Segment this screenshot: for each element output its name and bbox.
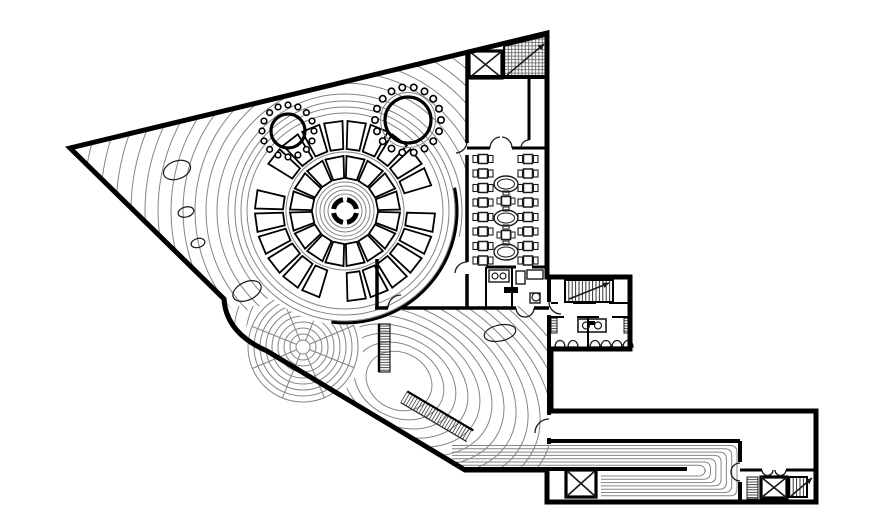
chair-dot <box>374 128 380 134</box>
chair-dot <box>304 110 310 116</box>
square-table <box>502 197 511 206</box>
chair-dot <box>430 96 436 102</box>
table <box>479 242 488 251</box>
chair-dot <box>436 128 442 134</box>
chair-dot <box>399 84 405 90</box>
chair-dot <box>374 106 380 112</box>
ramp <box>379 324 390 372</box>
chair-dot <box>267 110 273 116</box>
chair-dot <box>275 152 281 158</box>
restroom-fixtures <box>555 319 633 347</box>
chair-dot <box>309 138 315 144</box>
table <box>524 184 533 193</box>
toilet <box>555 341 565 348</box>
table <box>479 184 488 193</box>
chair-dot <box>430 138 436 144</box>
table <box>479 213 488 222</box>
chair-dot <box>311 128 317 134</box>
chair-dot <box>285 154 291 160</box>
restaurant-tables <box>473 155 538 266</box>
table <box>524 213 533 222</box>
chair-dot <box>275 104 281 110</box>
double-door <box>490 137 512 148</box>
door-swing <box>456 143 467 153</box>
table <box>524 155 533 164</box>
wing-upper-walls <box>467 76 547 140</box>
chair-dot <box>295 104 301 110</box>
chair-dot <box>285 102 291 108</box>
table <box>479 227 488 236</box>
table <box>479 155 488 164</box>
stairs <box>504 36 812 498</box>
door-swing <box>535 419 549 433</box>
table <box>524 198 533 207</box>
chair-dot <box>380 96 386 102</box>
chair-dot <box>295 152 301 158</box>
table <box>524 256 533 265</box>
square-table <box>502 231 511 240</box>
chair-dot <box>411 149 417 155</box>
chair-dot <box>421 145 427 151</box>
table <box>479 198 488 207</box>
planter <box>483 322 518 344</box>
toilet <box>612 341 622 348</box>
table <box>524 227 533 236</box>
chair-dot <box>421 88 427 94</box>
floor-plan <box>0 0 882 526</box>
hatch-strip <box>747 477 758 499</box>
planter <box>177 205 195 219</box>
chair-dot <box>380 138 386 144</box>
double-door-notch <box>762 470 786 476</box>
generated-content-layer <box>0 0 812 526</box>
chair-dot <box>372 117 378 123</box>
chair-dot <box>267 147 273 153</box>
toilet <box>590 341 600 348</box>
floor-plan-canvas <box>0 0 882 526</box>
double-door <box>731 463 740 481</box>
chair-dot <box>304 147 310 153</box>
chair-dot <box>399 149 405 155</box>
chair-dot <box>411 84 417 90</box>
chair-dot <box>388 88 394 94</box>
stairs <box>789 477 807 497</box>
table <box>524 242 533 251</box>
toilet <box>568 341 578 348</box>
table <box>524 169 533 178</box>
chair-dot <box>261 118 267 124</box>
chair-dot <box>438 117 444 123</box>
hatch-strip <box>551 318 557 333</box>
table <box>479 256 488 265</box>
chair-dot <box>261 138 267 144</box>
chair-dot <box>388 145 394 151</box>
chair-dot <box>259 128 265 134</box>
kitchen-fixtures <box>489 270 543 303</box>
chair-dot <box>309 118 315 124</box>
toilet <box>601 341 611 348</box>
table <box>479 169 488 178</box>
chair-dot <box>436 106 442 112</box>
